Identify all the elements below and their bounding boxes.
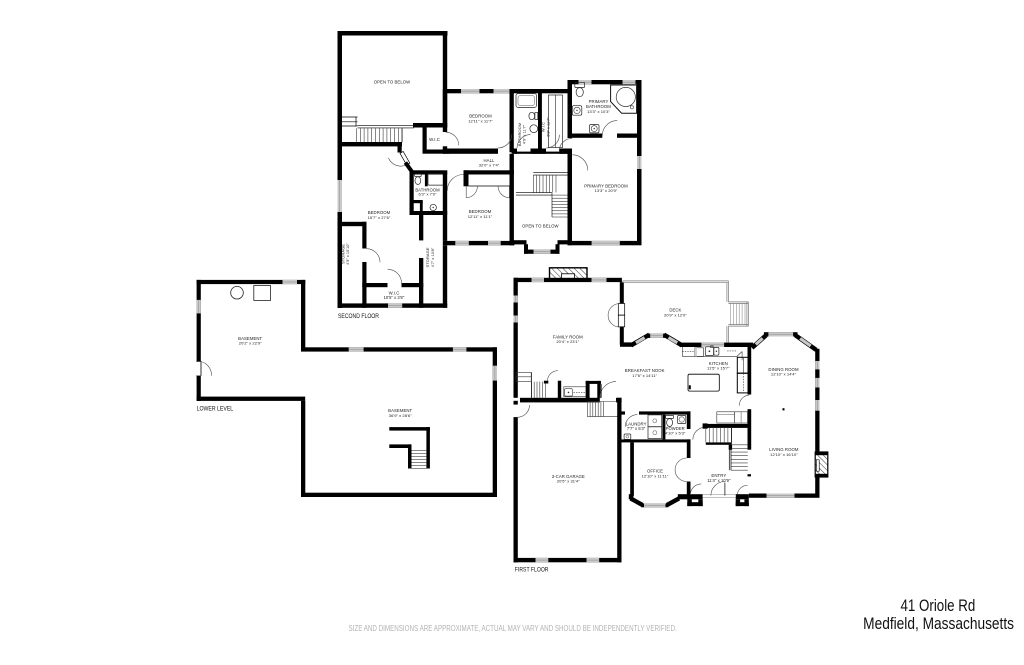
svg-text:4'10" x 5'3": 4'10" x 5'3" — [665, 431, 686, 436]
svg-text:4'9" x 15'10": 4'9" x 15'10" — [346, 243, 350, 265]
svg-text:12'10" x 14'4": 12'10" x 14'4" — [771, 372, 797, 377]
svg-text:12'10" x 11'11": 12'10" x 11'11" — [642, 473, 669, 478]
svg-text:11'5" x 15'7": 11'5" x 15'7" — [707, 366, 730, 371]
svg-text:STORAGE: STORAGE — [340, 244, 345, 264]
svg-text:12'10" x 16'10": 12'10" x 16'10" — [770, 452, 798, 457]
svg-text:STORAGE: STORAGE — [425, 247, 430, 267]
svg-text:12'11" x 11'7": 12'11" x 11'7" — [468, 118, 493, 123]
svg-text:20'5" x 31'4": 20'5" x 31'4" — [557, 479, 580, 484]
svg-text:13'3" x 10'3": 13'3" x 10'3" — [587, 109, 610, 114]
svg-text:12'11" x 11'1": 12'11" x 11'1" — [468, 214, 493, 219]
svg-text:Medfield, Massachusetts: Medfield, Massachusetts — [863, 615, 1014, 633]
svg-text:17'6" x 14'11": 17'6" x 14'11" — [632, 373, 657, 378]
svg-text:20'9" x 12'0": 20'9" x 12'0" — [664, 312, 687, 317]
svg-text:OPEN TO BELOW: OPEN TO BELOW — [522, 223, 559, 228]
svg-text:FIRST FLOOR: FIRST FLOOR — [515, 566, 549, 573]
svg-text:13'3" x 20'9": 13'3" x 20'9" — [595, 188, 618, 193]
svg-text:6'3" x 7'0": 6'3" x 7'0" — [418, 192, 437, 197]
svg-text:SECOND FLOOR: SECOND FLOOR — [338, 313, 379, 320]
svg-text:4'7" x 10'8": 4'7" x 10'8" — [431, 247, 435, 267]
svg-text:7'7" x 5'3": 7'7" x 5'3" — [627, 426, 646, 431]
svg-text:5'9" x 11'7": 5'9" x 11'7" — [546, 117, 550, 137]
svg-text:OPEN TO BELOW: OPEN TO BELOW — [374, 80, 411, 85]
svg-text:20'4" x 23'1": 20'4" x 23'1" — [556, 339, 579, 344]
svg-text:36'9" x 28'6": 36'9" x 28'6" — [389, 413, 412, 418]
svg-text:W.I.C: W.I.C — [541, 122, 546, 132]
svg-text:15'7" x 27'6": 15'7" x 27'6" — [368, 215, 391, 220]
svg-text:11'4" x 10'9": 11'4" x 10'9" — [707, 478, 731, 483]
svg-text:BATHROOM: BATHROOM — [517, 122, 522, 146]
svg-text:SIZE AND DIMENSIONS ARE APPROX: SIZE AND DIMENSIONS ARE APPROXIMATE, ACT… — [349, 624, 677, 633]
svg-text:4'9" x 11'7": 4'9" x 11'7" — [523, 124, 527, 144]
svg-text:32'0" x 7'4": 32'0" x 7'4" — [479, 163, 500, 168]
svg-text:41 Oriole Rd: 41 Oriole Rd — [901, 597, 976, 615]
svg-text:20'2" x 22'9": 20'2" x 22'9" — [239, 341, 262, 346]
svg-text:W.I.C: W.I.C — [429, 137, 440, 142]
svg-text:10'5" x 3'8": 10'5" x 3'8" — [384, 295, 405, 300]
svg-text:LOWER LEVEL: LOWER LEVEL — [197, 406, 234, 413]
